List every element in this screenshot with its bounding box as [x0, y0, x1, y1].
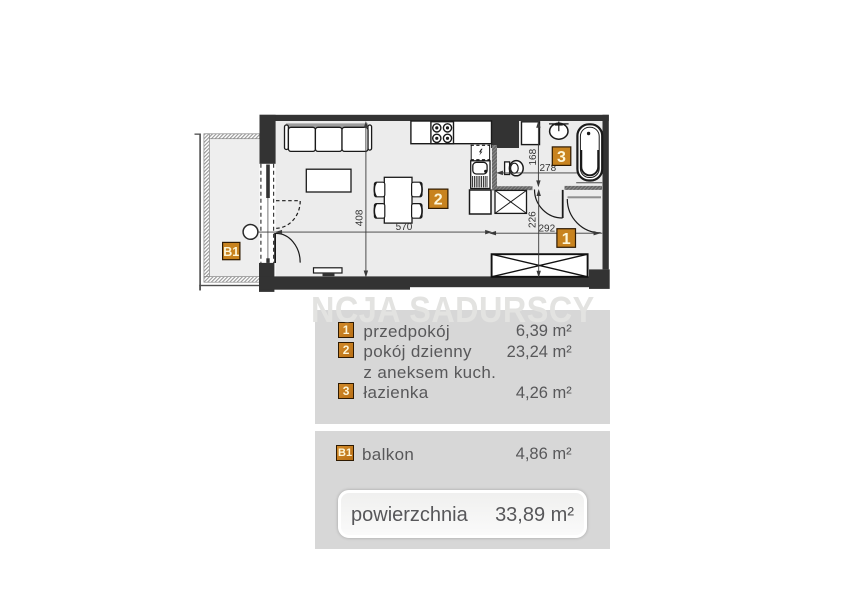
svg-text:168: 168 — [528, 148, 539, 165]
svg-text:226: 226 — [528, 211, 539, 228]
svg-text:2: 2 — [434, 192, 443, 209]
svg-text:3: 3 — [557, 149, 566, 166]
svg-text:408: 408 — [355, 209, 366, 226]
svg-text:1: 1 — [562, 231, 571, 248]
svg-text:B1: B1 — [223, 245, 239, 259]
svg-text:292: 292 — [538, 224, 555, 235]
svg-text:570: 570 — [396, 222, 413, 233]
